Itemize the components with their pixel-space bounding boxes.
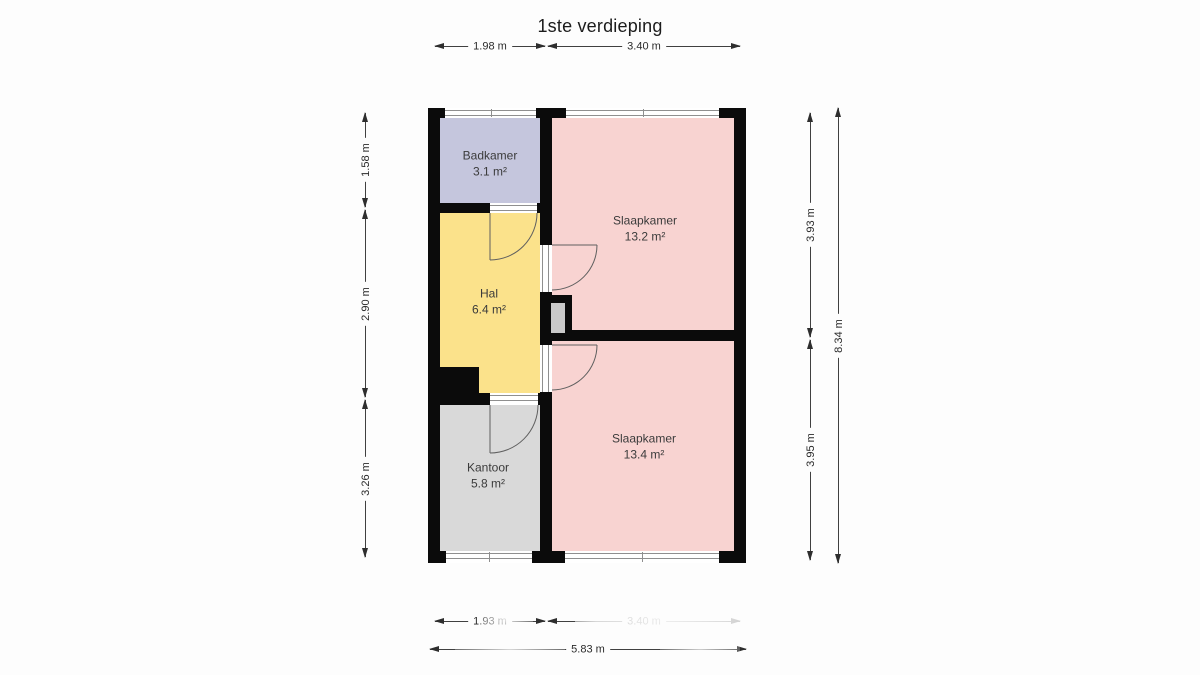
wall-left (428, 108, 440, 563)
wall-badkamer-hal (428, 203, 490, 213)
window-mullion (491, 109, 492, 117)
arrow-up-icon (807, 339, 813, 349)
arrow-left-icon (547, 618, 557, 624)
wall-top-segment (428, 108, 445, 118)
dimension-label: 1.58 m (360, 138, 372, 182)
door-arc-kantoor (485, 400, 545, 462)
arrow-left-icon (434, 43, 444, 49)
dimension-left-bottom: 3.26 m (365, 400, 366, 557)
arrow-right-icon (731, 43, 741, 49)
room-area: 6.4 m² (472, 302, 506, 318)
room-name: Badkamer (463, 148, 518, 164)
room-name: Slaapkamer (612, 431, 676, 447)
dimension-top-left: 1.98 m (435, 46, 545, 47)
room-label-slaapkamer-1: Slaapkamer 13.2 m² (613, 213, 677, 244)
room-area: 13.4 m² (612, 447, 676, 463)
dimension-label: 2.90 m (360, 282, 372, 326)
window-kantoor (446, 551, 532, 563)
room-area: 5.8 m² (467, 476, 509, 492)
arrow-right-icon (536, 43, 546, 49)
dimension-label: 1.93 m (468, 616, 512, 628)
dimension-left-middle: 2.90 m (365, 210, 366, 397)
window-mullion (643, 109, 644, 117)
dimension-label: 3.26 m (360, 457, 372, 501)
arrow-down-icon (807, 551, 813, 561)
arrow-right-icon (536, 618, 546, 624)
arrow-left-icon (434, 618, 444, 624)
wall-step-block (437, 367, 479, 393)
arrow-right-icon (737, 646, 747, 652)
arrow-left-icon (547, 43, 557, 49)
page-title: 1ste verdieping (0, 16, 1200, 37)
room-label-slaapkamer-2: Slaapkamer 13.4 m² (612, 431, 676, 462)
dimension-right-bottom: 3.95 m (810, 340, 811, 560)
dimension-right-top: 3.93 m (810, 113, 811, 337)
wall-hal-kantoor (440, 393, 490, 405)
window-mullion (489, 552, 490, 562)
room-area: 3.1 m² (463, 164, 518, 180)
room-label-kantoor: Kantoor 5.8 m² (467, 460, 509, 491)
arrow-left-icon (429, 646, 439, 652)
arrow-down-icon (835, 554, 841, 564)
arrow-up-icon (362, 209, 368, 219)
arrow-right-icon (731, 618, 741, 624)
window-mullion (642, 552, 643, 562)
dimension-label: 8.34 m (833, 314, 845, 358)
arrow-down-icon (807, 328, 813, 338)
shaft-duct (551, 303, 565, 333)
wall-bottom-segment (428, 551, 446, 563)
floorplan-canvas: 1ste verdieping (0, 0, 1200, 675)
arrow-up-icon (807, 112, 813, 122)
dimension-left-top: 1.58 m (365, 113, 366, 207)
room-name: Slaapkamer (613, 213, 677, 229)
window-slaapkamer-2 (565, 551, 719, 563)
dimension-bottom-total: 5.83 m (430, 649, 746, 650)
arrow-up-icon (835, 107, 841, 117)
dimension-right-total: 8.34 m (838, 108, 839, 563)
dimension-label: 3.95 m (805, 428, 817, 472)
wall-top-segment (719, 108, 746, 118)
dimension-bottom-left: 1.93 m (435, 621, 545, 622)
dimension-label: 3.40 m (622, 616, 666, 628)
door-arc-badkamer (485, 208, 545, 270)
room-label-badkamer: Badkamer 3.1 m² (463, 148, 518, 179)
arrow-up-icon (362, 399, 368, 409)
dimension-label: 5.83 m (566, 644, 610, 656)
dimension-label: 3.93 m (805, 203, 817, 247)
dimension-label: 3.40 m (622, 41, 666, 53)
dimension-top-right: 3.40 m (548, 46, 740, 47)
room-label-hal: Hal 6.4 m² (472, 286, 506, 317)
arrow-down-icon (362, 388, 368, 398)
dimension-bottom-right: 3.40 m (548, 621, 740, 622)
room-area: 13.2 m² (613, 229, 677, 245)
wall-right (734, 108, 746, 563)
room-name: Kantoor (467, 460, 509, 476)
arrow-up-icon (362, 112, 368, 122)
dimension-label: 1.98 m (468, 41, 512, 53)
arrow-down-icon (362, 198, 368, 208)
window-badkamer (445, 108, 536, 118)
door-arc-slaapkamer-2 (547, 340, 605, 398)
arrow-down-icon (362, 548, 368, 558)
wall-bottom-segment (719, 551, 746, 563)
room-name: Hal (472, 286, 506, 302)
door-arc-slaapkamer-1 (547, 240, 605, 298)
window-slaapkamer-1 (566, 108, 719, 118)
